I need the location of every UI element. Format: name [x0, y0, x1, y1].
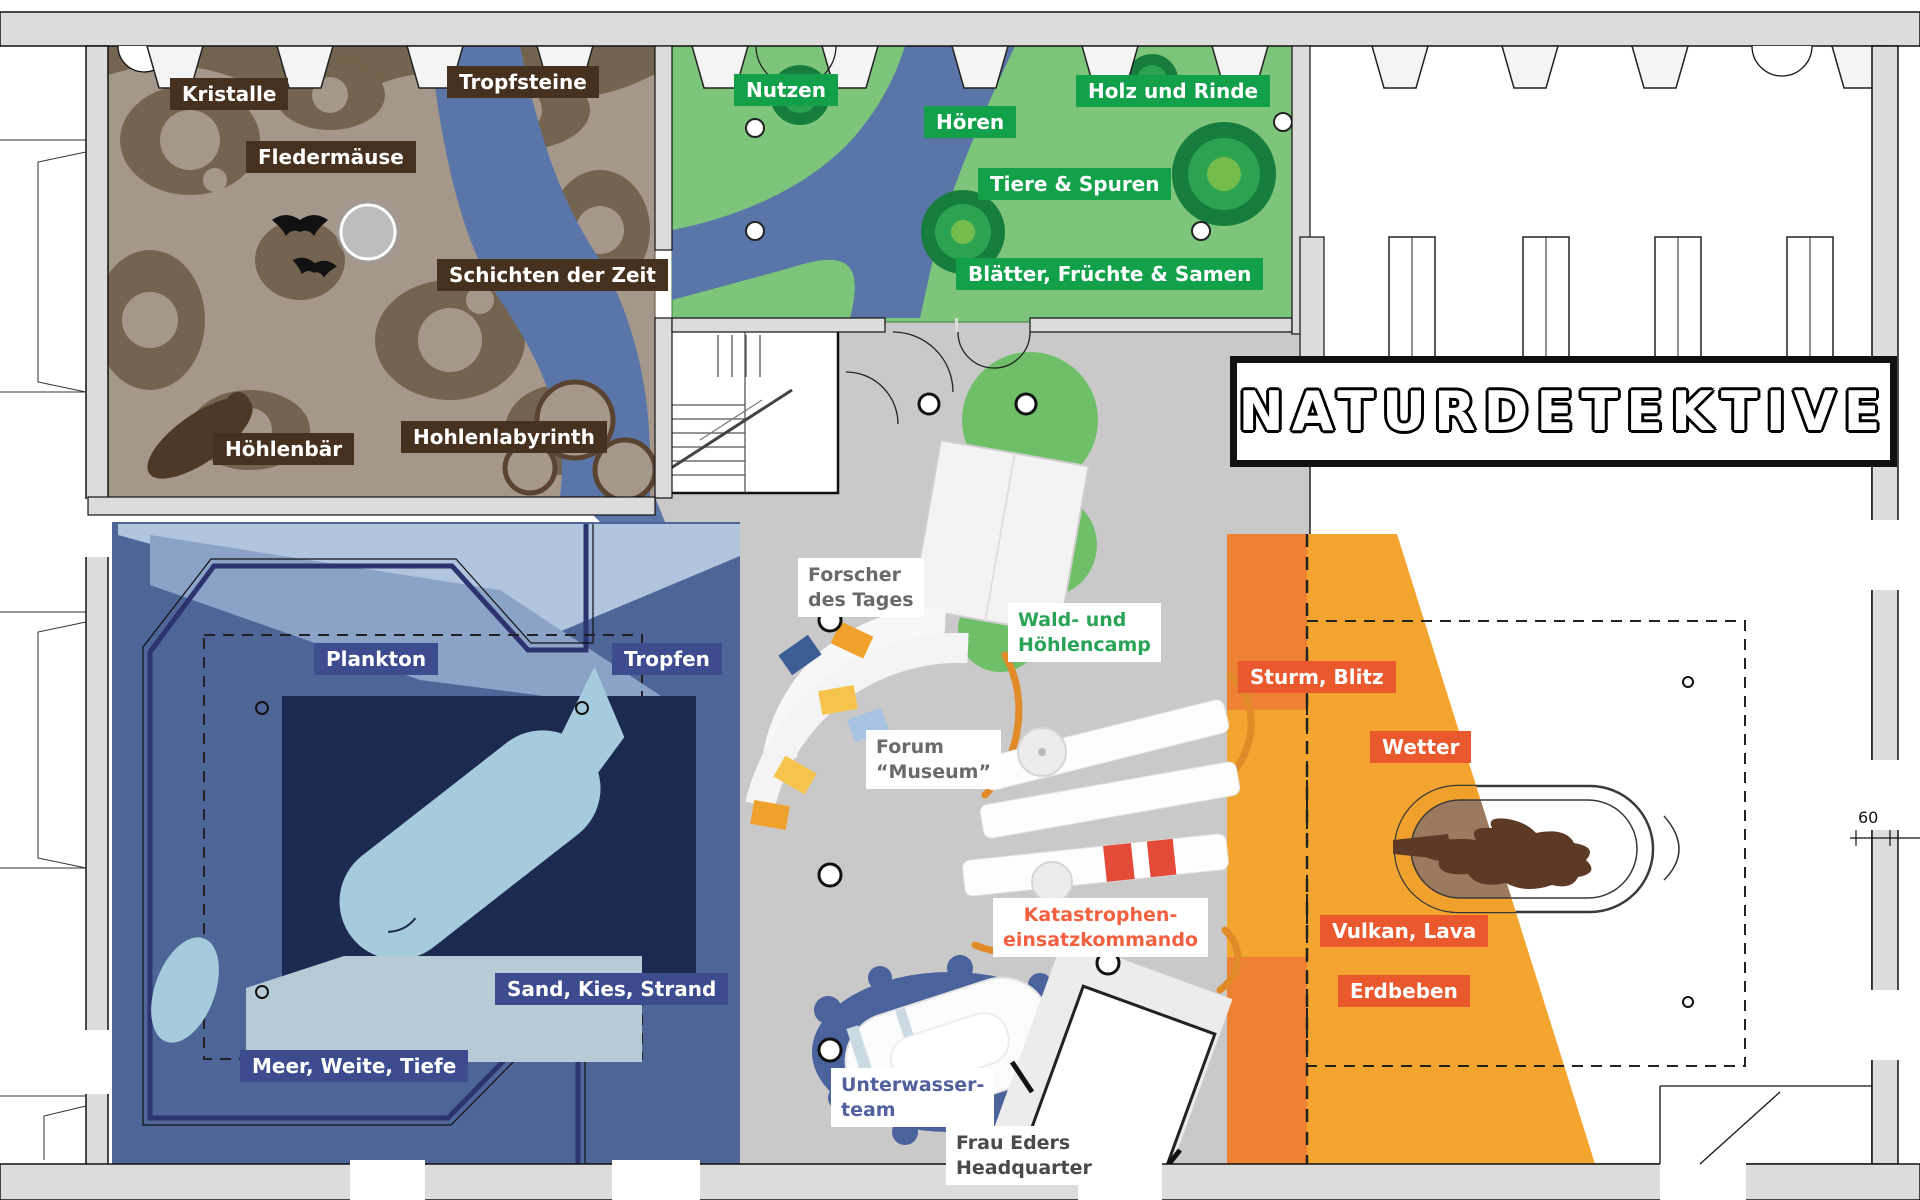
label-unterwasserteam: Unterwasser- team [831, 1068, 994, 1127]
label-meer: Meer, Weite, Tiefe [240, 1050, 468, 1082]
label-forscher-des-tages: Forscher des Tages [798, 558, 924, 617]
label-line: Forscher [808, 563, 914, 588]
floorplan-drawing [0, 0, 1920, 1200]
dimension-label: 60 [1858, 808, 1878, 827]
floorplan-naturdetektive: Kristalle Tropfsteine Fledermäuse Schich… [0, 0, 1920, 1200]
label-fledermaeuse: Fledermäuse [246, 141, 416, 173]
label-wald-hoehlencamp: Wald- und Höhlencamp [1008, 603, 1161, 662]
label-line: team [841, 1098, 984, 1123]
label-plankton: Plankton [314, 643, 438, 675]
label-line: Wald- und [1018, 608, 1151, 633]
label-line: “Museum” [876, 760, 991, 785]
label-hohlenlabyrinth: Hohlenlabyrinth [401, 421, 607, 453]
label-line: Forum [876, 735, 991, 760]
label-line: Frau Eders [956, 1131, 1092, 1156]
label-line: einsatzkommando [1003, 928, 1198, 953]
label-line: Katastrophen- [1003, 903, 1198, 928]
label-tropfen: Tropfen [612, 643, 722, 675]
label-line: Höhlencamp [1018, 633, 1151, 658]
label-schichten: Schichten der Zeit [437, 259, 668, 291]
label-line: Unterwasser- [841, 1073, 984, 1098]
label-tropfsteine: Tropfsteine [447, 66, 599, 98]
label-forum-museum: Forum “Museum” [866, 730, 1001, 789]
label-erdbeben: Erdbeben [1338, 975, 1470, 1007]
label-holz: Holz und Rinde [1076, 75, 1270, 107]
label-sturm: Sturm, Blitz [1238, 661, 1396, 693]
label-wetter: Wetter [1370, 731, 1471, 763]
label-nutzen: Nutzen [734, 74, 838, 106]
label-katastrophen: Katastrophen- einsatzkommando [993, 898, 1208, 957]
label-hoeren: Hören [924, 106, 1016, 138]
exhibition-title: NATURDETEKTIVE [1230, 356, 1897, 467]
volcano-basin [1393, 786, 1679, 912]
label-blaetter: Blätter, Früchte & Samen [956, 258, 1263, 290]
label-kristalle: Kristalle [170, 78, 288, 110]
label-frau-eders: Frau Eders Headquarter [946, 1126, 1102, 1185]
label-sand: Sand, Kies, Strand [495, 973, 728, 1005]
label-line: Headquarter [956, 1156, 1092, 1181]
label-vulkan: Vulkan, Lava [1320, 915, 1488, 947]
label-tiere: Tiere & Spuren [978, 168, 1171, 200]
label-hoehlenbaer: Höhlenbär [213, 433, 354, 465]
label-line: des Tages [808, 588, 914, 613]
sand-area [246, 956, 642, 1062]
